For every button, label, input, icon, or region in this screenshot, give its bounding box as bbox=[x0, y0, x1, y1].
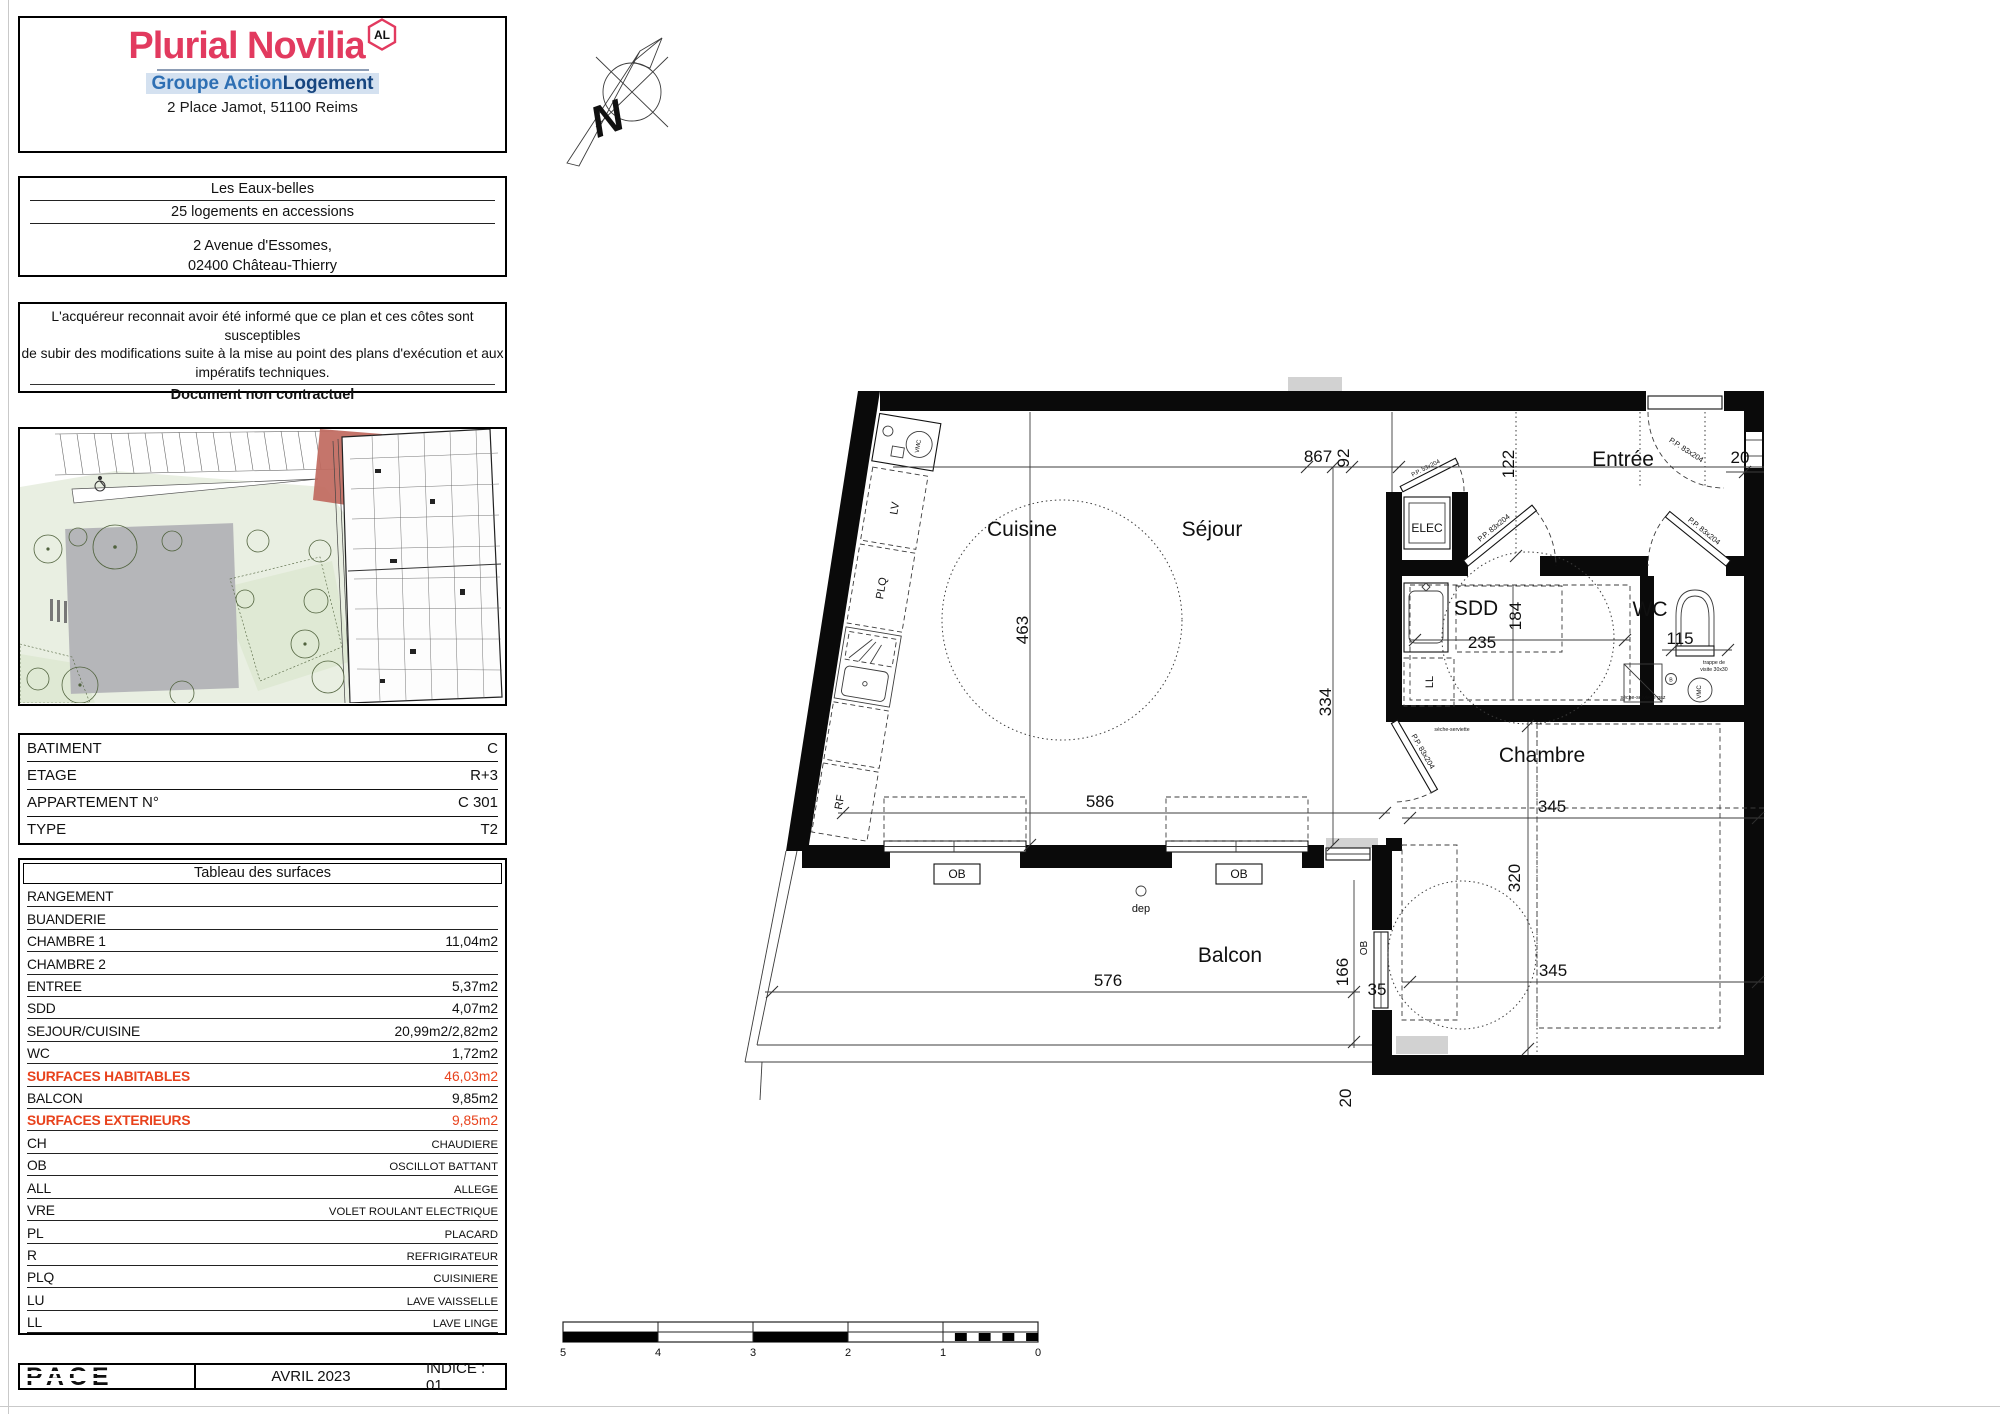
ob-label: OB bbox=[1359, 940, 1370, 955]
table-row: RANGEMENT bbox=[27, 885, 498, 907]
room-label-sejour: Séjour bbox=[1182, 518, 1243, 541]
legend-row: CHCHAUDIERE bbox=[27, 1131, 498, 1153]
walls bbox=[786, 391, 1764, 1075]
entrance-door: P.P. 83x204 bbox=[1648, 396, 1724, 488]
table-row: ETAGER+3 bbox=[27, 762, 498, 789]
dim-345-bottom: 345 bbox=[1539, 961, 1567, 980]
dim-345-top: 345 bbox=[1538, 797, 1566, 816]
dim-20-top: 20 bbox=[1731, 448, 1750, 467]
table-row: BUANDERIE bbox=[27, 907, 498, 929]
legend-row: LLLAVE LINGE bbox=[27, 1311, 498, 1333]
scale-number: 5 bbox=[560, 1347, 566, 1359]
balcony-door bbox=[1326, 848, 1370, 860]
divider bbox=[30, 223, 495, 224]
brand-badge-icon: AL bbox=[367, 18, 397, 56]
site-gray-building bbox=[65, 523, 239, 694]
dim-576: 576 bbox=[1094, 971, 1122, 990]
surfaces-habitables-row: SURFACES HABITABLES46,03m2 bbox=[27, 1064, 498, 1086]
ob-label: OB bbox=[948, 867, 965, 881]
door-label: P.P. 83x204 bbox=[1668, 436, 1706, 465]
dim-334: 334 bbox=[1316, 688, 1335, 716]
table-row: TYPET2 bbox=[27, 817, 498, 843]
unit-row-value: T2 bbox=[480, 821, 498, 838]
shadow-patch bbox=[1288, 377, 1342, 391]
window-ob-2: OB bbox=[1166, 797, 1308, 884]
unit-row-label: APPARTEMENT N° bbox=[27, 794, 458, 811]
disclaimer-bold: Document non contractuel bbox=[30, 384, 495, 403]
unit-info-table: BATIMENTC ETAGER+3 APPARTEMENT N°C 301 T… bbox=[18, 733, 507, 845]
table-row: BATIMENTC bbox=[27, 735, 498, 762]
dimension-lines bbox=[765, 412, 1764, 1055]
company-address: 2 Place Jamot, 51100 Reims bbox=[20, 99, 505, 116]
logo-box: Plurial NoviliaAL Groupe ActionLogement … bbox=[18, 16, 507, 153]
brand-logo: Plurial Novilia bbox=[128, 25, 364, 67]
room-label-wc: WC bbox=[1633, 598, 1668, 621]
table-row: ENTREE5,37m2 bbox=[27, 975, 498, 997]
lv-label: LV bbox=[888, 500, 902, 515]
shadow-patch bbox=[1396, 1036, 1448, 1054]
dep-label: dep bbox=[1132, 903, 1150, 915]
north-arrow: N bbox=[555, 25, 720, 180]
group-name-light: Groupe Action bbox=[151, 73, 282, 94]
window-ob-1: OB bbox=[884, 797, 1026, 884]
shadow-patch bbox=[1326, 838, 1378, 848]
scale-number: 0 bbox=[1035, 1347, 1041, 1359]
disclaimer-box: L'acquéreur reconnait avoir été informé … bbox=[18, 302, 507, 393]
dim-122: 122 bbox=[1499, 450, 1518, 478]
elec-label: ELEC bbox=[1411, 521, 1443, 535]
dim-35: 35 bbox=[1368, 980, 1387, 999]
project-address-line1: 2 Avenue d'Essomes, bbox=[20, 236, 505, 256]
scale-number: 1 bbox=[940, 1347, 946, 1359]
door-closet: P.P. 53x204 bbox=[1397, 452, 1464, 492]
dim-463: 463 bbox=[1013, 616, 1032, 644]
site-plan-box bbox=[18, 427, 507, 706]
brand-row: Plurial NoviliaAL bbox=[20, 27, 505, 65]
legend-row: LULAVE VAISSELLE bbox=[27, 1288, 498, 1310]
table-row: SDD4,07m2 bbox=[27, 997, 498, 1019]
unit-row-label: TYPE bbox=[27, 821, 480, 838]
surfaces-exterieurs-row: SURFACES EXTERIEURS9,85m2 bbox=[27, 1109, 498, 1131]
unit-row-label: BATIMENT bbox=[27, 740, 487, 757]
room-label-entree: Entrée bbox=[1592, 448, 1654, 471]
rf-label: RF bbox=[833, 794, 847, 811]
b-label: B bbox=[1669, 678, 1673, 684]
dim-586: 586 bbox=[1086, 792, 1114, 811]
brand-badge-text: AL bbox=[374, 28, 390, 42]
scale-bar: 5 4 3 2 1 0 bbox=[550, 1312, 1060, 1367]
seche-gaz-label: sèche-serviette gaz bbox=[1621, 695, 1666, 701]
architect-logo-text: PACE bbox=[26, 1365, 114, 1389]
floor-plan: OB OB OB P.P. 83x204 P.P. 83x204 P.P. bbox=[730, 370, 1810, 1110]
table-row: CHAMBRE 111,04m2 bbox=[27, 930, 498, 952]
project-name: Les Eaux-belles bbox=[20, 178, 505, 200]
dim-867: 867 bbox=[1304, 447, 1332, 466]
dep-marker: dep bbox=[1132, 886, 1150, 915]
group-line: Groupe ActionLogement bbox=[20, 73, 505, 95]
ob-label: OB bbox=[1230, 867, 1247, 881]
vmc-label: VMC bbox=[1697, 685, 1703, 699]
title-block-footer: PACE AVRIL 2023 INDICE : 01 bbox=[18, 1363, 507, 1390]
room-label-sdd: SDD bbox=[1454, 597, 1498, 620]
disclaimer-line1: L'acquéreur reconnait avoir été informé … bbox=[20, 308, 505, 345]
unit-row-value: C 301 bbox=[458, 794, 498, 811]
dim-320: 320 bbox=[1505, 864, 1524, 892]
plan-indice: INDICE : 01 bbox=[426, 1365, 505, 1388]
surfaces-title: Tableau des surfaces bbox=[23, 863, 502, 884]
project-subtitle: 25 logements en accessions bbox=[20, 201, 505, 223]
legend-row: VREVOLET ROULANT ELECTRIQUE bbox=[27, 1199, 498, 1221]
room-label-chambre: Chambre bbox=[1499, 744, 1585, 767]
brand-rule bbox=[157, 69, 369, 71]
trappe-label-line2: visite 30x30 bbox=[1700, 667, 1728, 673]
table-row: BALCON9,85m2 bbox=[27, 1087, 498, 1109]
room-label-cuisine: Cuisine bbox=[987, 518, 1057, 541]
legend-row: ALLALLEGE bbox=[27, 1176, 498, 1198]
dim-166: 166 bbox=[1333, 958, 1352, 986]
site-cad-building bbox=[333, 429, 502, 703]
dim-20-bottom: 20 bbox=[1336, 1089, 1355, 1108]
door-sdd: P.P. 83x204 bbox=[1457, 497, 1556, 566]
unit-row-value: C bbox=[487, 740, 498, 757]
project-address-line2: 02400 Château-Thierry bbox=[20, 256, 505, 276]
scale-number: 3 bbox=[750, 1347, 756, 1359]
table-row: WC1,72m2 bbox=[27, 1042, 498, 1064]
scale-number: 4 bbox=[655, 1347, 661, 1359]
disclaimer-line2: de subir des modifications suite à la mi… bbox=[20, 345, 505, 364]
room-label-balcon: Balcon bbox=[1198, 944, 1262, 967]
table-row: SEJOUR/CUISINE20,99m2/2,82m2 bbox=[27, 1019, 498, 1041]
dim-92: 92 bbox=[1334, 449, 1353, 468]
seche-serviette-label: sèche-serviette bbox=[1434, 727, 1469, 733]
trappe-label-line1: trappe de bbox=[1703, 660, 1725, 666]
unit-row-label: ETAGE bbox=[27, 767, 470, 784]
project-box: Les Eaux-belles 25 logements en accessio… bbox=[18, 176, 507, 277]
surfaces-table: Tableau des surfaces RANGEMENT BUANDERIE… bbox=[18, 858, 507, 1335]
site-plan bbox=[20, 429, 504, 703]
plan-date: AVRIL 2023 bbox=[196, 1365, 426, 1388]
table-row: APPARTEMENT N°C 301 bbox=[27, 790, 498, 817]
dimension-ticks bbox=[766, 461, 1764, 1055]
dim-235: 235 bbox=[1468, 633, 1496, 652]
elec-closet: ELEC bbox=[1404, 497, 1450, 549]
legend-row: PLQCUISINIERE bbox=[27, 1266, 498, 1288]
balcony-slab bbox=[745, 851, 1372, 1100]
disclaimer-line3: impératifs techniques. bbox=[20, 364, 505, 383]
legend-row: PLPLACARD bbox=[27, 1221, 498, 1243]
page-edge-line-horizontal bbox=[0, 1406, 2000, 1407]
dim-115: 115 bbox=[1666, 629, 1693, 648]
legend-row: RREFRIGIRATEUR bbox=[27, 1244, 498, 1266]
architect-logo: PACE bbox=[20, 1365, 196, 1388]
scale-number: 2 bbox=[845, 1347, 851, 1359]
dim-184: 184 bbox=[1506, 602, 1525, 630]
legend-row: OBOSCILLOT BATTANT bbox=[27, 1154, 498, 1176]
ll-label: LL bbox=[1424, 676, 1436, 688]
unit-row-value: R+3 bbox=[470, 767, 498, 784]
table-row: CHAMBRE 2 bbox=[27, 952, 498, 974]
plq-label: PLQ bbox=[874, 576, 890, 600]
group-name-dark: Logement bbox=[283, 73, 374, 94]
door-wc: P.P. 83x204 bbox=[1648, 503, 1737, 566]
page-edge-line-vertical bbox=[8, 0, 9, 1414]
